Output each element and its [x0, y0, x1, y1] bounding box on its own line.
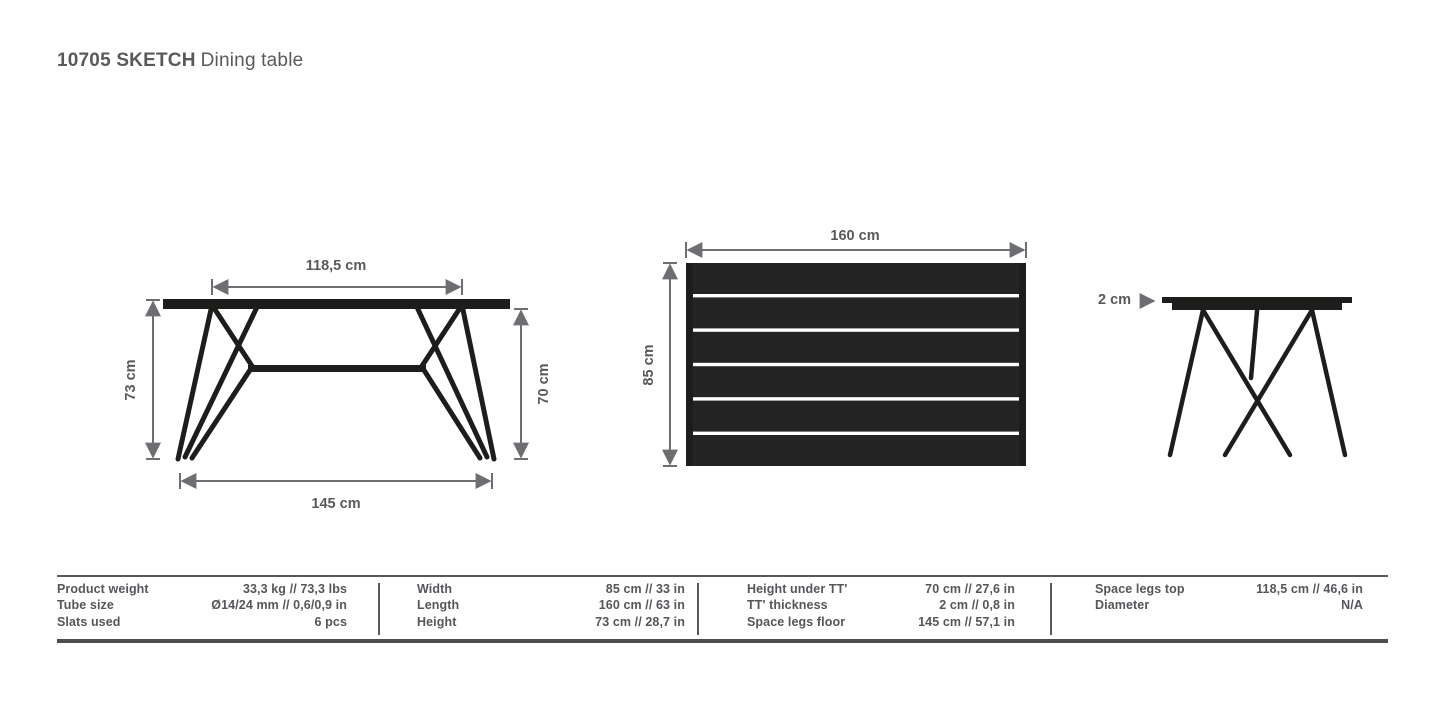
spec-group-weight: Product weight 33,3 kg // 73,3 lbs Tube … — [57, 582, 347, 631]
spec-row: Tube size Ø14/24 mm // 0,6/0,9 in — [57, 598, 347, 614]
spec-row: Space legs top 118,5 cm // 46,6 in — [1095, 582, 1363, 598]
spec-row: Length 160 cm // 63 in — [417, 598, 685, 614]
spec-separator-2 — [697, 583, 699, 635]
spec-value: N/A — [1341, 598, 1363, 612]
spec-separator-1 — [378, 583, 380, 635]
spec-row: Height under TT' 70 cm // 27,6 in — [747, 582, 1015, 598]
spec-row: Space legs floor 145 cm // 57,1 in — [747, 615, 1015, 631]
spec-label: Space legs floor — [747, 615, 845, 629]
spec-value: 70 cm // 27,6 in — [925, 582, 1015, 596]
spec-value: 6 pcs — [315, 615, 347, 629]
top-view — [686, 263, 1026, 466]
front-view — [163, 299, 510, 459]
spec-label: Width — [417, 582, 452, 596]
front-dim-top-label: 118,5 cm — [276, 258, 396, 274]
front-dim-right-label: 70 cm — [536, 354, 552, 414]
spec-table: Product weight 33,3 kg // 73,3 lbs Tube … — [0, 575, 1445, 650]
spec-group-clearance: Height under TT' 70 cm // 27,6 in TT' th… — [747, 582, 1015, 631]
spec-row: Width 85 cm // 33 in — [417, 582, 685, 598]
spec-label: Diameter — [1095, 598, 1149, 612]
spec-row: Height 73 cm // 28,7 in — [417, 615, 685, 631]
spec-value: 145 cm // 57,1 in — [918, 615, 1015, 629]
front-dim-bottom-label: 145 cm — [276, 496, 396, 512]
spec-label: Height — [417, 615, 457, 629]
side-dim-thickness-label: 2 cm — [1098, 292, 1140, 308]
spec-label: Tube size — [57, 598, 114, 612]
spec-group-size: Width 85 cm // 33 in Length 160 cm // 63… — [417, 582, 685, 631]
spec-value: 160 cm // 63 in — [599, 598, 685, 612]
front-dim-left-label: 73 cm — [123, 350, 139, 410]
spec-value: 118,5 cm // 46,6 in — [1256, 582, 1363, 596]
spec-group-legs: Space legs top 118,5 cm // 46,6 in Diame… — [1095, 582, 1363, 615]
spec-label: Product weight — [57, 582, 149, 596]
spec-label: Height under TT' — [747, 582, 847, 596]
spec-value: 2 cm // 0,8 in — [939, 598, 1015, 612]
spec-label: Slats used — [57, 615, 121, 629]
spec-value: 85 cm // 33 in — [606, 582, 685, 596]
spec-sheet-page: 10705 SKETCHDining table — [0, 0, 1445, 707]
spec-row: Slats used 6 pcs — [57, 615, 347, 631]
top-dim-width-label: 85 cm — [641, 335, 657, 395]
spec-bottom-rule — [57, 639, 1388, 643]
spec-top-rule — [57, 575, 1388, 577]
spec-label: Length — [417, 598, 459, 612]
spec-value: 33,3 kg // 73,3 lbs — [243, 582, 347, 596]
spec-row: Product weight 33,3 kg // 73,3 lbs — [57, 582, 347, 598]
front-view-dimensions — [146, 279, 528, 489]
spec-label: Space legs top — [1095, 582, 1185, 596]
side-view — [1162, 297, 1352, 455]
spec-label: TT' thickness — [747, 598, 828, 612]
spec-value: Ø14/24 mm // 0,6/0,9 in — [211, 598, 347, 612]
spec-row: TT' thickness 2 cm // 0,8 in — [747, 598, 1015, 614]
spec-row: Diameter N/A — [1095, 598, 1363, 614]
spec-value: 73 cm // 28,7 in — [595, 615, 685, 629]
spec-separator-3 — [1050, 583, 1052, 635]
top-dim-length-label: 160 cm — [795, 228, 915, 244]
